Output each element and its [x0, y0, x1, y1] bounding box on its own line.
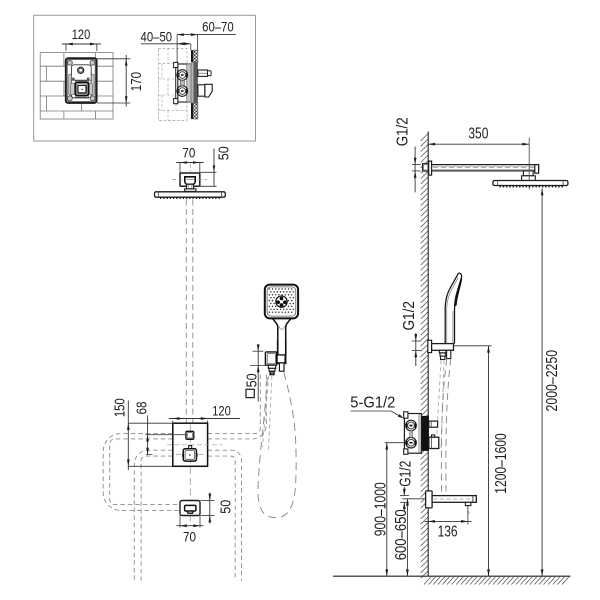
svg-text:170: 170 — [129, 72, 145, 91]
svg-text:G1/2: G1/2 — [401, 301, 418, 331]
svg-text:G1/2: G1/2 — [398, 461, 415, 487]
svg-text:150: 150 — [112, 398, 128, 417]
svg-text:50: 50 — [218, 500, 234, 514]
svg-text:1200–1600: 1200–1600 — [493, 433, 510, 494]
svg-text:60–70: 60–70 — [202, 19, 234, 35]
svg-text:50: 50 — [245, 373, 261, 387]
svg-text:68: 68 — [134, 402, 150, 415]
svg-text:2000–2250: 2000–2250 — [544, 350, 561, 412]
svg-text:350: 350 — [468, 125, 488, 142]
svg-text:50: 50 — [216, 146, 232, 160]
svg-text:70: 70 — [182, 145, 195, 161]
svg-text:120: 120 — [212, 402, 231, 418]
svg-text:70: 70 — [183, 529, 196, 545]
svg-text:900–1000: 900–1000 — [373, 482, 390, 536]
svg-text:5-G1/2: 5-G1/2 — [350, 395, 395, 412]
svg-text:120: 120 — [72, 26, 91, 42]
svg-text:136: 136 — [438, 524, 458, 541]
svg-text:G1/2: G1/2 — [395, 117, 412, 146]
svg-text:40–50: 40–50 — [141, 28, 173, 44]
svg-text:600–650: 600–650 — [393, 509, 410, 560]
